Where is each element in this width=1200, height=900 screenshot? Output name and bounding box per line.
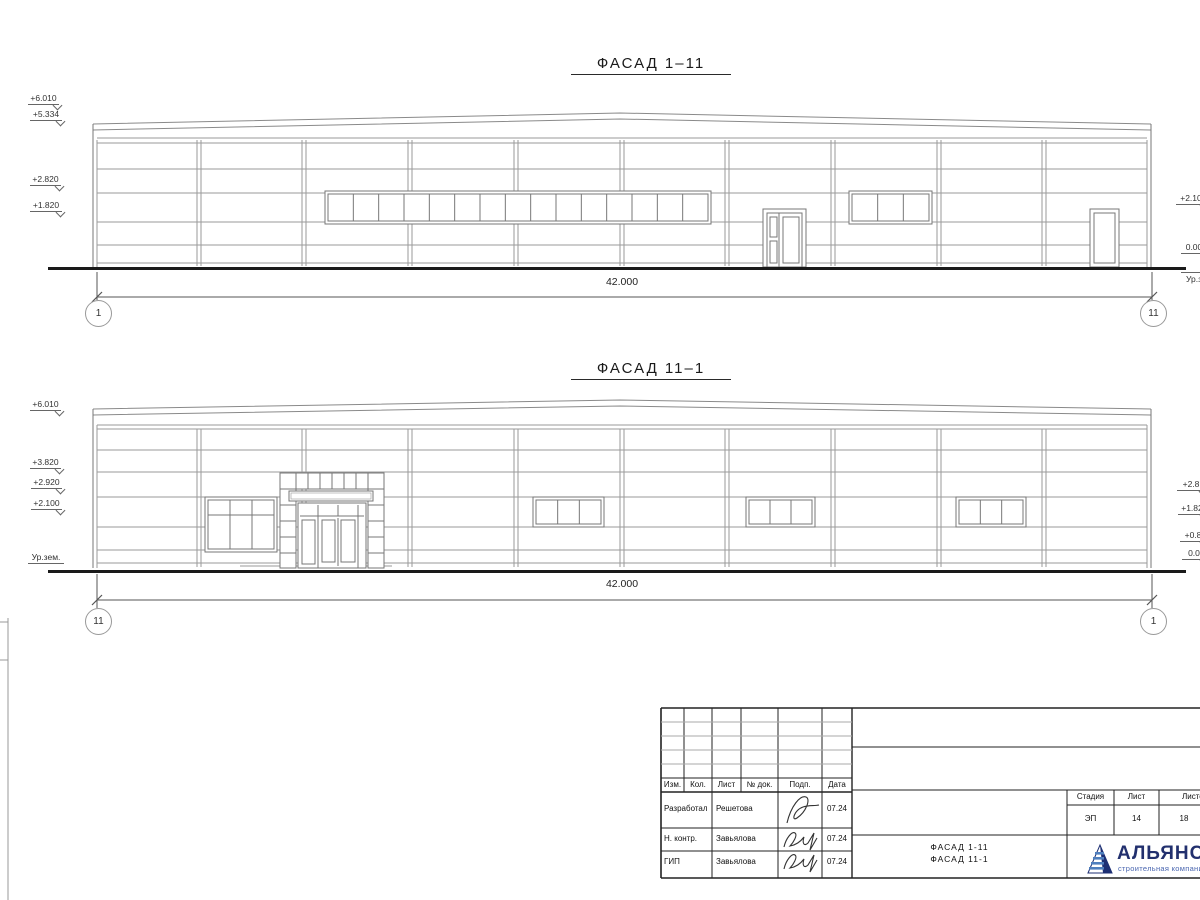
level-mark: +5.334 (30, 109, 62, 121)
tb-role-ncontrol: Н. контр. (664, 834, 697, 843)
tb-stage-value: ЭП (1067, 814, 1114, 823)
level-value: 0.0 (1188, 548, 1200, 558)
level-value: Ур.зем. (32, 552, 61, 562)
tb-sheet-header: Лист (1114, 792, 1159, 801)
facade-1-11-drawing (48, 113, 1186, 269)
facade1-overall-dimension: 42.000 (562, 276, 682, 288)
axis-bubble-f2-right: 1 (1140, 608, 1167, 635)
level-value: +6.010 (32, 399, 58, 409)
level-value: +2.100 (33, 498, 59, 508)
level-value: +2.10 (1180, 193, 1200, 203)
level-value: +6.010 (30, 93, 56, 103)
cad-linework (0, 0, 1200, 900)
tb-stage-header: Стадия (1067, 792, 1114, 801)
facade2-overall-dimension: 42.000 (562, 578, 682, 590)
axis-bubble-f2-left: 11 (85, 608, 112, 635)
company-tagline: строительная компания (1118, 864, 1200, 873)
level-mark: +2.10 (1176, 193, 1200, 205)
ground-level-mark: Ур.зем. (28, 552, 64, 564)
level-value: 0.00 (1186, 242, 1200, 252)
level-mark: +6.010 (30, 399, 61, 411)
tb-col-list: Лист (712, 780, 741, 789)
tb-col-ndok: № док. (741, 780, 778, 789)
signature-scribbles (784, 797, 819, 872)
tb-doc-title-line1: ФАСАД 1-11 (852, 842, 1067, 852)
level-value: +2.8 (1183, 479, 1200, 489)
level-mark: 0.0 (1182, 548, 1200, 560)
tb-sheets-header: Листов (1159, 792, 1200, 801)
tb-sheet-value: 14 (1114, 814, 1159, 823)
company-name: АЛЬЯНС (1117, 843, 1200, 865)
tb-name-gip: Завьялова (716, 857, 756, 866)
level-mark: +2.100 (31, 498, 62, 510)
level-value: +2.920 (33, 477, 59, 487)
tb-col-kol: Кол. (684, 780, 712, 789)
level-mark: +0.8 (1180, 530, 1200, 542)
tb-col-data: Дата (822, 780, 852, 789)
tb-role-developer: Разработал (664, 804, 708, 813)
drawing-sheet: { "facade1": { "title": "ФАСАД 1–11", "d… (0, 0, 1200, 900)
level-mark: +2.8 (1177, 479, 1200, 491)
level-mark: +1.82 (1178, 503, 1200, 515)
level-value: +1.82 (1181, 503, 1200, 513)
level-mark: 0.00 (1181, 242, 1200, 254)
sheet-frame (0, 618, 8, 900)
level-mark: +3.820 (30, 457, 61, 469)
company-logo-icon (1088, 845, 1112, 873)
facade-1-11-title: ФАСАД 1–11 (571, 55, 731, 75)
level-value: Ур.з (1186, 274, 1200, 284)
level-mark: Ур.з (1181, 272, 1200, 285)
level-value: +0.8 (1185, 530, 1200, 540)
tb-sheets-value: 18 (1159, 814, 1200, 823)
tb-date-gip: 07.24 (822, 857, 852, 866)
facade-11-1-title: ФАСАД 11–1 (571, 360, 731, 380)
tb-date-ncontrol: 07.24 (822, 834, 852, 843)
tb-name-developer: Решетова (716, 804, 753, 813)
level-mark: +2.820 (30, 174, 61, 186)
level-value: +5.334 (33, 109, 59, 119)
tb-col-izm: Изм. (659, 780, 686, 789)
level-value: +3.820 (32, 457, 58, 467)
axis-bubble-f1-right: 11 (1140, 300, 1167, 327)
tb-col-podp: Подп. (778, 780, 822, 789)
facade-11-1-drawing (48, 400, 1186, 572)
level-value: +1.820 (33, 200, 59, 210)
level-value: +2.820 (32, 174, 58, 184)
level-mark: +1.820 (30, 200, 62, 212)
level-mark: +6.010 (28, 93, 59, 105)
tb-role-gip: ГИП (664, 857, 680, 866)
tb-date-developer: 07.24 (822, 804, 852, 813)
axis-bubble-f1-left: 1 (85, 300, 112, 327)
level-mark: +2.920 (31, 477, 62, 489)
tb-name-ncontrol: Завьялова (716, 834, 756, 843)
tb-doc-title-line2: ФАСАД 11-1 (852, 854, 1067, 864)
